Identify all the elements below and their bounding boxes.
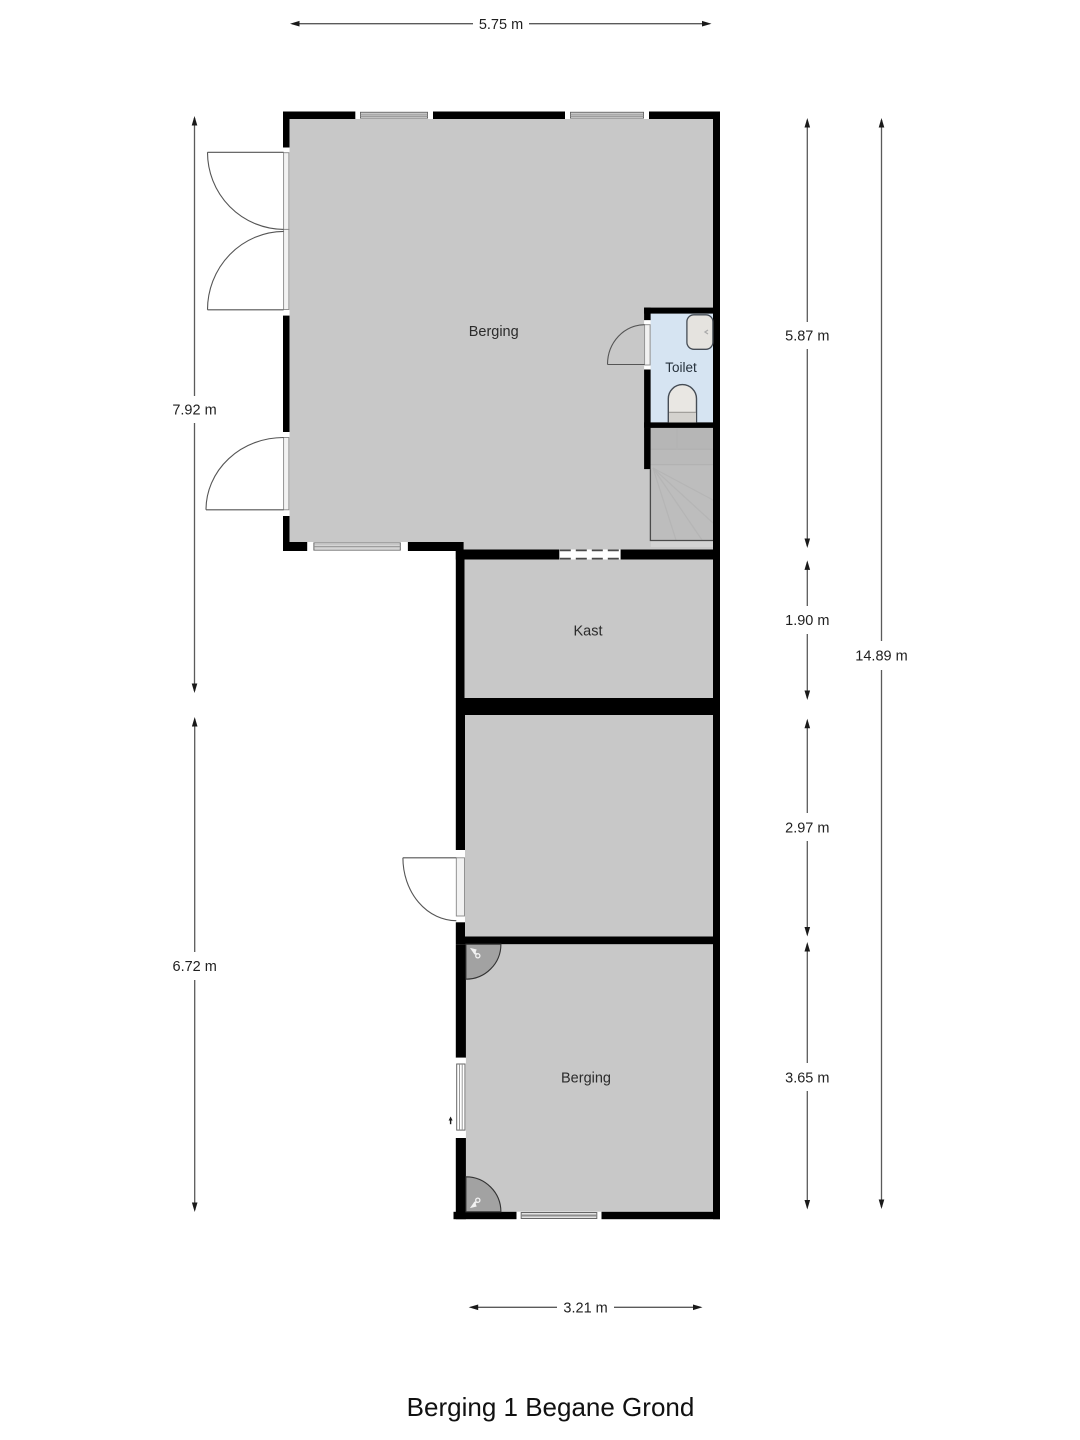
svg-text:5.87 m: 5.87 m: [785, 329, 829, 345]
svg-text:Berging 1 Begane Grond: Berging 1 Begane Grond: [407, 1392, 695, 1422]
svg-text:Toilet: Toilet: [665, 360, 697, 375]
svg-text:Kast: Kast: [573, 624, 602, 640]
svg-text:1.90 m: 1.90 m: [785, 613, 829, 629]
svg-text:5.75 m: 5.75 m: [479, 17, 523, 33]
svg-text:14.89 m: 14.89 m: [855, 649, 907, 665]
svg-text:Berging: Berging: [469, 324, 519, 340]
svg-text:3.65 m: 3.65 m: [785, 1071, 829, 1087]
svg-text:6.72 m: 6.72 m: [173, 959, 217, 975]
svg-text:7.92 m: 7.92 m: [172, 403, 216, 419]
svg-text:Berging: Berging: [561, 1071, 611, 1087]
svg-text:2.97 m: 2.97 m: [785, 821, 829, 837]
svg-text:3.21 m: 3.21 m: [563, 1300, 607, 1316]
